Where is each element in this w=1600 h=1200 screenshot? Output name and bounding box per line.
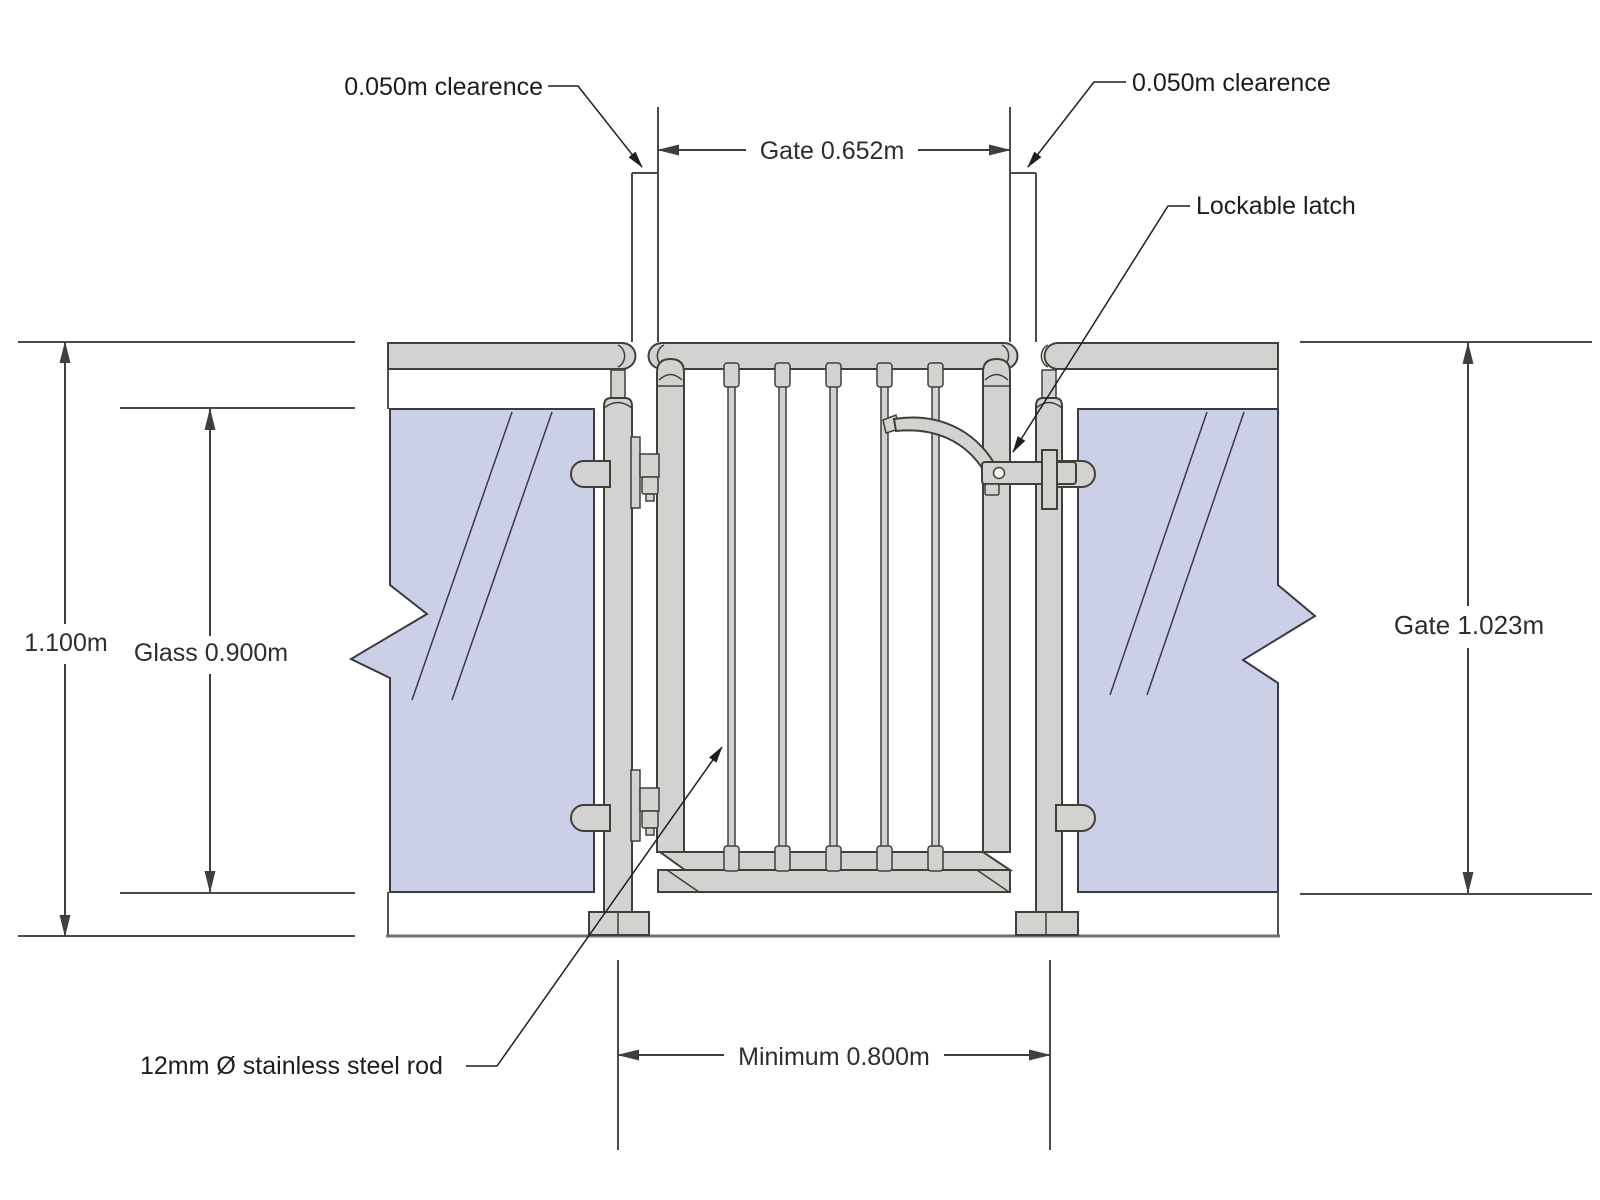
dimension-glass-height: Glass 0.900m (134, 409, 288, 892)
extension-lines (18, 342, 1592, 1150)
latch-keeper-plate (1042, 450, 1057, 509)
annotation-clearance-left: 0.050m clearence (344, 73, 642, 167)
gate-left-stile (657, 359, 684, 852)
drawing-canvas: Gate 0.652m 1.100m Glass 0.900m Gate 1.0… (0, 0, 1600, 1200)
minimum-opening-label: Minimum 0.800m (738, 1043, 930, 1071)
gate-rods (724, 363, 943, 871)
glass-clamp (571, 461, 610, 487)
glass-clamp (1056, 805, 1095, 831)
latch-bolt (985, 484, 999, 495)
post-base-plate (1016, 912, 1078, 935)
stainless-rod (928, 363, 943, 871)
clearance-right-label: 0.050m clearence (1132, 69, 1331, 97)
stainless-rod (826, 363, 841, 871)
right-fence-handrail (1041, 343, 1278, 369)
stainless-rod (877, 363, 892, 871)
dimension-gate-width: Gate 0.652m (658, 137, 1010, 165)
annotation-clearance-right: 0.050m clearence (1028, 69, 1331, 167)
latch-handle (894, 418, 994, 471)
dimension-gate-height: Gate 1.023m (1394, 343, 1544, 893)
bottom-hinge (631, 770, 659, 841)
total-height-label: 1.100m (24, 629, 107, 657)
left-glass-panel (351, 409, 594, 892)
dimension-total-height: 1.100m (24, 342, 107, 936)
left-fence-handrail (388, 343, 636, 369)
stainless-rod (724, 363, 739, 871)
gate-width-label: Gate 0.652m (760, 137, 905, 165)
right-glass-panel (1078, 409, 1315, 892)
top-hinge (631, 437, 659, 508)
post-saddle-connector (611, 370, 625, 399)
clearance-left-label: 0.050m clearence (344, 73, 543, 101)
glass-clamp (571, 805, 610, 831)
gate-right-stile (983, 359, 1010, 852)
gate-elevation-drawing: Gate 0.652m 1.100m Glass 0.900m Gate 1.0… (0, 0, 1600, 1200)
stainless-rod-label: 12mm Ø stainless steel rod (140, 1052, 443, 1080)
gate-height-label: Gate 1.023m (1394, 610, 1544, 640)
lockable-latch-label: Lockable latch (1196, 192, 1356, 220)
glass-height-label: Glass 0.900m (134, 639, 288, 667)
dimension-minimum-opening: Minimum 0.800m (618, 1043, 1050, 1071)
stainless-rod (775, 363, 790, 871)
latch-pin-hole (994, 468, 1005, 479)
